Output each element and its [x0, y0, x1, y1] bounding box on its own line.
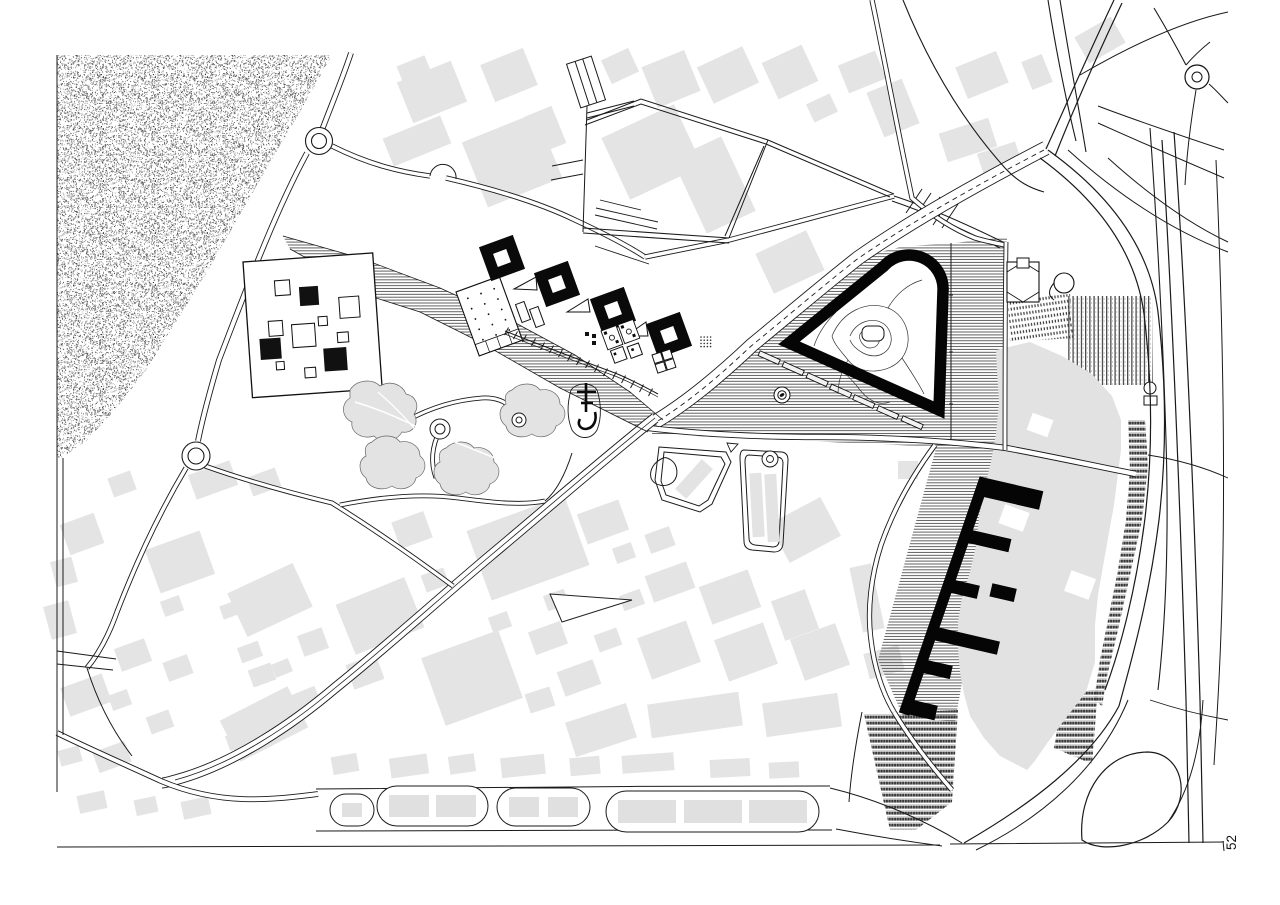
svg-text:52: 52 [1224, 835, 1239, 850]
